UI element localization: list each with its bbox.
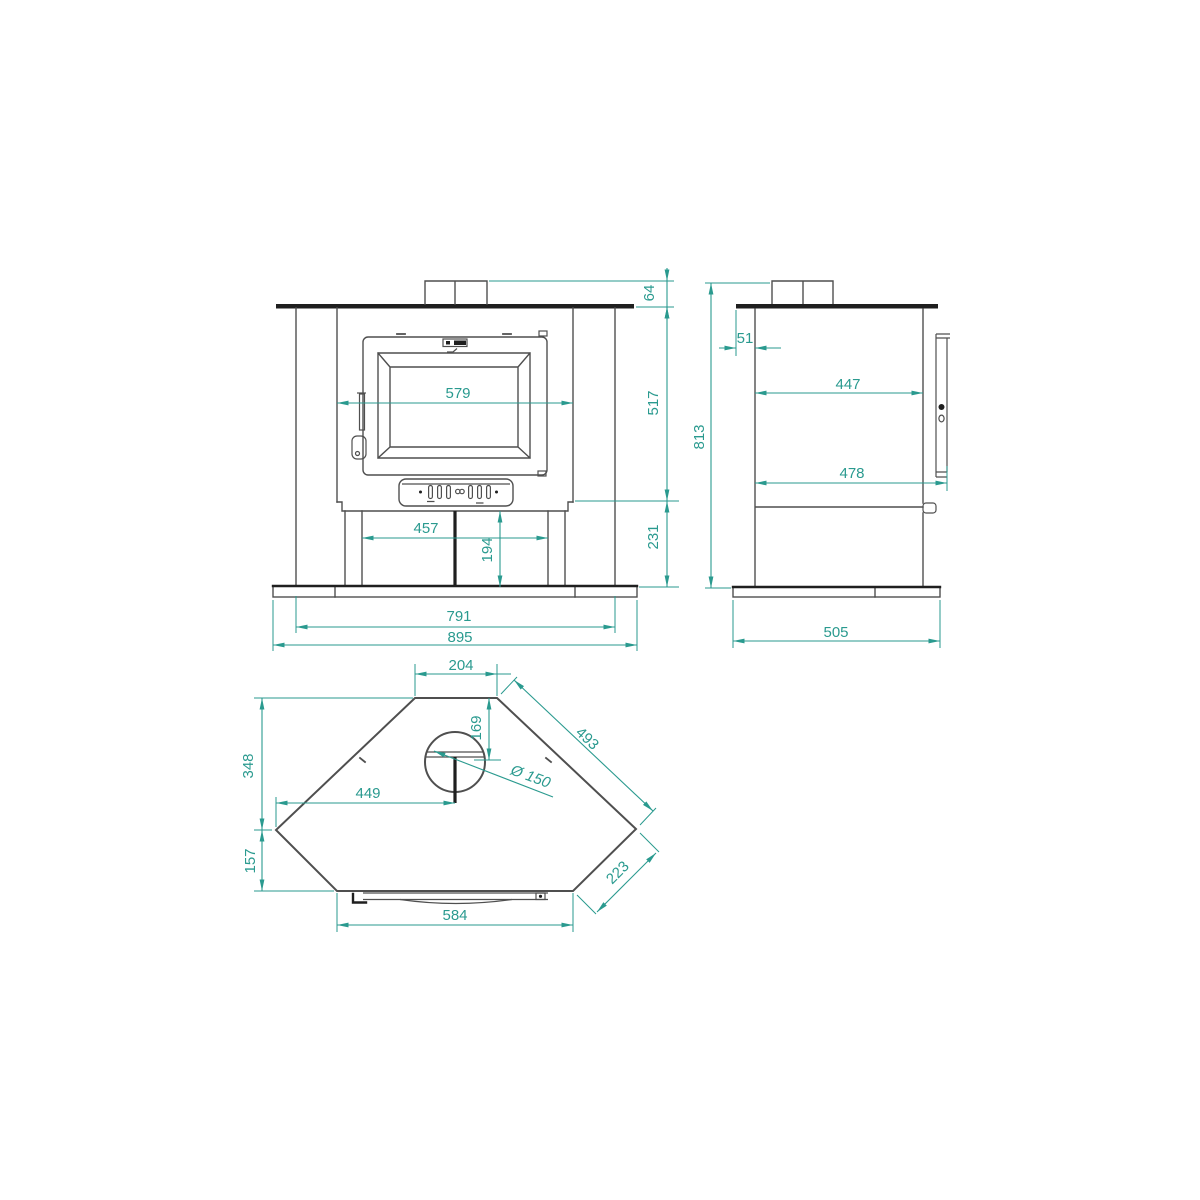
side-flue-collar (772, 281, 833, 305)
dim-194-label: 194 (479, 537, 496, 562)
dim-791-label: 791 (446, 608, 471, 625)
dim-348-label: 348 (240, 753, 257, 778)
panel-slot (469, 486, 473, 499)
dim-517-label: 517 (645, 390, 662, 415)
side-door-step (923, 503, 936, 513)
dim-51-label: 51 (737, 330, 754, 347)
dim-169-label: 169 (468, 715, 485, 740)
top-front-door-bar (353, 893, 548, 904)
top-flue-damper-plate (426, 752, 484, 757)
panel-slot (478, 486, 482, 499)
technical-drawing: 64 517 231 579 457 194 791 895 (0, 0, 1200, 1200)
side-door-strip (936, 334, 950, 477)
dim-584-label: 584 (442, 907, 467, 924)
front-control-panel (399, 479, 513, 506)
front-hinge-top (539, 331, 547, 336)
panel-slot (487, 486, 491, 499)
dim-493-label: 493 (572, 724, 602, 754)
dim-449-label: 449 (355, 785, 380, 802)
dim-157-label: 157 (242, 848, 259, 873)
panel-dot-right (495, 491, 498, 494)
panel-slot (447, 486, 451, 499)
top-view: 204 348 157 449 169 Ø 150 493 223 584 (240, 657, 659, 932)
side-floor-plate (733, 587, 940, 597)
dim-579-label: 579 (445, 385, 470, 402)
dim-505-label: 505 (823, 624, 848, 641)
front-floor-plate-seams (335, 586, 575, 597)
front-flue-collar (425, 281, 487, 304)
panel-dot-left (419, 491, 422, 494)
dim-flue-diameter-label: Ø 150 (507, 761, 553, 792)
side-top-plate (736, 304, 938, 309)
dim-895-label: 895 (447, 629, 472, 646)
front-latch-lever (447, 349, 457, 353)
dim-204-label: 204 (448, 657, 473, 674)
dim-223-label: 223 (603, 858, 633, 888)
dim-223-line (597, 853, 656, 912)
handle-screw (356, 452, 360, 456)
front-latch-slider (454, 341, 466, 346)
front-view: 64 517 231 579 457 194 791 895 (273, 268, 679, 651)
front-floor-plate (273, 586, 637, 597)
front-window-frame (378, 353, 530, 458)
dim-64-label: 64 (641, 285, 658, 302)
front-latch-pin (446, 341, 450, 345)
front-dimensions: 64 517 231 579 457 194 791 895 (273, 268, 679, 651)
side-view: 813 51 447 478 505 (691, 281, 950, 648)
panel-underlines (427, 502, 484, 504)
dim-478-label: 478 (839, 465, 864, 482)
side-body (755, 309, 923, 587)
dim-447-label: 447 (835, 376, 860, 393)
dim-457-label: 457 (413, 520, 438, 537)
top-latch-pin (539, 895, 542, 898)
dim-813-label: 813 (691, 424, 708, 449)
side-dimensions: 813 51 447 478 505 (691, 283, 947, 648)
panel-slot (429, 486, 433, 499)
side-latch-hole (939, 415, 944, 422)
dim-231-label: 231 (645, 524, 662, 549)
top-handle-bracket (353, 894, 366, 903)
panel-slot (438, 486, 442, 499)
side-hinge-pin (939, 404, 945, 410)
front-structure (273, 281, 637, 597)
page: 64 517 231 579 457 194 791 895 (0, 0, 1200, 1200)
panel-link-icon (456, 489, 465, 493)
side-structure (733, 281, 950, 597)
handle-bar (360, 394, 365, 430)
